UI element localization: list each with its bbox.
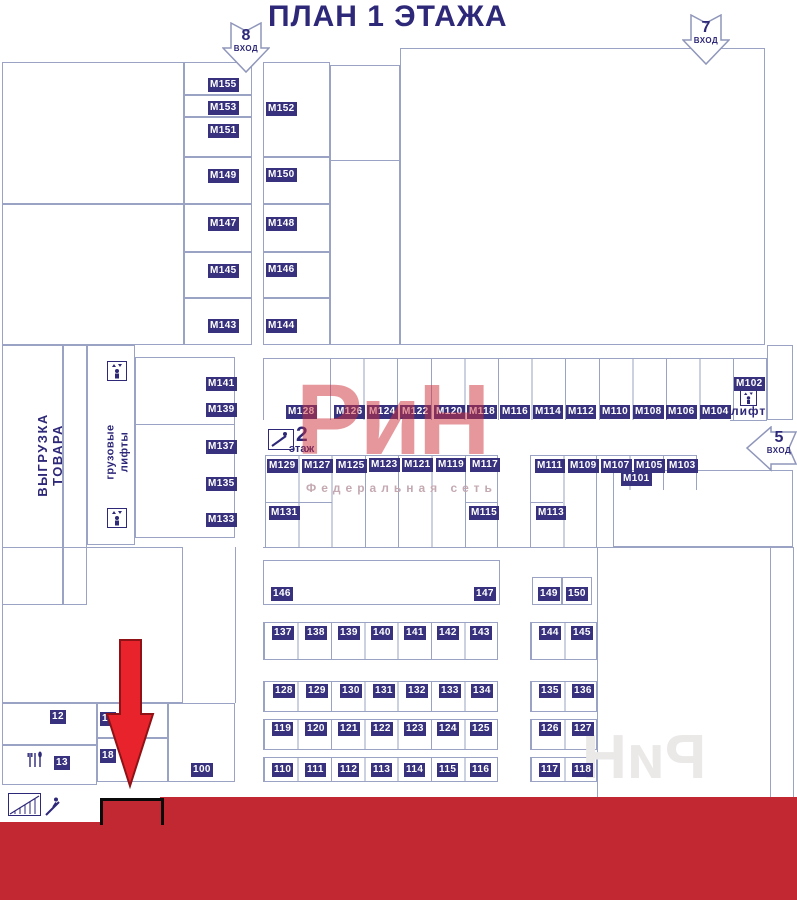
- brand-watermark: РиН: [582, 726, 706, 790]
- wall: [530, 502, 563, 503]
- wall: [135, 424, 235, 425]
- wall: [330, 160, 400, 161]
- room-outline: [330, 65, 400, 345]
- unit-badge-М114: М114: [533, 405, 563, 419]
- unit-badge-149: 149: [538, 587, 560, 601]
- highlighted-unit-box: [100, 798, 164, 825]
- unit-badge-М131: М131: [269, 506, 300, 520]
- brand-subtitle: Федеральная сеть: [306, 481, 497, 495]
- unit-badge-М146: М146: [266, 263, 297, 277]
- unit-badge-112: 112: [338, 763, 359, 777]
- unit-badge-М107: М107: [601, 459, 632, 473]
- floor-plan: ПЛАН 1 ЭТАЖА: [0, 0, 797, 900]
- unit-badge-М139: М139: [206, 403, 237, 417]
- unit-badge-118: 118: [572, 763, 593, 777]
- entrance-number: 8: [222, 28, 270, 44]
- entrance-7: 7ВХОД: [682, 14, 730, 66]
- unit-badge-М103: М103: [667, 459, 698, 473]
- unit-badge-114: 114: [404, 763, 425, 777]
- lift-label: лифт: [731, 405, 766, 418]
- wall: [263, 547, 793, 548]
- unit-badge-М116: М116: [500, 405, 530, 419]
- entrance-word: ВХОД: [682, 36, 730, 45]
- unit-badge-126: 126: [539, 722, 561, 736]
- stairs-icon: [8, 793, 41, 816]
- unit-badge-М133: М133: [206, 513, 237, 527]
- unit-badge-123: 123: [404, 722, 426, 736]
- unit-badge-128: 128: [273, 684, 295, 698]
- unit-badge-М145: М145: [208, 264, 239, 278]
- escalator-person-icon: [44, 795, 62, 817]
- unit-badge-145: 145: [571, 626, 593, 640]
- unit-badge-138: 138: [305, 626, 327, 640]
- unit-badge-М143: М143: [208, 319, 239, 333]
- unit-badge-115: 115: [437, 763, 458, 777]
- unit-badge-М112: М112: [566, 405, 596, 419]
- entrance-word: ВХОД: [762, 446, 796, 455]
- unit-badge-134: 134: [471, 684, 493, 698]
- room-outline: [2, 745, 97, 785]
- location-arrow-icon: [103, 634, 157, 790]
- unit-badge-М144: М144: [266, 319, 297, 333]
- unit-badge-111: 111: [305, 763, 326, 777]
- unit-badge-125: 125: [470, 722, 492, 736]
- unloading-area-label: ВЫГРУЗКА ТОВАРА: [36, 350, 64, 560]
- unit-badge-150: 150: [566, 587, 588, 601]
- unit-badge-М151: М151: [208, 124, 239, 138]
- wall: [770, 547, 771, 798]
- unit-badge-135: 135: [539, 684, 561, 698]
- unit-badge-116: 116: [470, 763, 491, 777]
- wall: [793, 547, 794, 798]
- room-outline: [2, 204, 184, 345]
- entrance-word: ВХОД: [222, 44, 270, 53]
- entrance-number: 5: [762, 430, 796, 446]
- unit-badge-113: 113: [371, 763, 392, 777]
- unit-badge-М110: М110: [600, 405, 630, 419]
- wall: [730, 420, 767, 421]
- room-outline: [400, 48, 765, 345]
- unit-badge-139: 139: [338, 626, 360, 640]
- unit-badge-М141: М141: [206, 377, 237, 391]
- entrance-8: 8ВХОД: [222, 22, 270, 74]
- unit-badge-141: 141: [404, 626, 426, 640]
- unit-badge-М153: М153: [208, 101, 239, 115]
- page-title: ПЛАН 1 ЭТАЖА: [268, 0, 508, 34]
- unit-badge-121: 121: [338, 722, 360, 736]
- unit-badge-147: 147: [474, 587, 496, 601]
- unit-badge-110: 110: [272, 763, 293, 777]
- unit-badge-М101: М101: [621, 472, 652, 486]
- unit-badge-М106: М106: [666, 405, 697, 419]
- unit-badge-120: 120: [305, 722, 327, 736]
- unit-badge-144: 144: [539, 626, 561, 640]
- unit-badge-119: 119: [272, 722, 293, 736]
- unit-badge-М108: М108: [633, 405, 664, 419]
- unit-badge-140: 140: [371, 626, 393, 640]
- unit-badge-М155: М155: [208, 78, 239, 92]
- unit-badge-13: 13: [54, 756, 70, 770]
- unit-badge-М109: М109: [568, 459, 599, 473]
- unit-badge-129: 129: [306, 684, 328, 698]
- unit-badge-М115: М115: [469, 506, 499, 520]
- cargo-lifts-label: грузовые лифты: [101, 393, 135, 511]
- unit-badge-М149: М149: [208, 169, 239, 183]
- wall: [263, 358, 264, 420]
- unit-badge-131: 131: [373, 684, 395, 698]
- unit-badge-М111: М111: [535, 459, 565, 473]
- unit-badge-142: 142: [437, 626, 459, 640]
- room-outline: [263, 560, 500, 605]
- cutlery-icon: [27, 751, 43, 769]
- unit-badge-М102: М102: [734, 377, 765, 391]
- elevator-icon: [107, 508, 127, 528]
- unit-badge-136: 136: [572, 684, 594, 698]
- unit-badge-124: 124: [437, 722, 459, 736]
- unit-badge-М105: М105: [634, 459, 665, 473]
- wall: [235, 547, 236, 703]
- unit-badge-12: 12: [50, 710, 66, 724]
- unit-badge-М104: М104: [700, 405, 731, 419]
- unit-badge-М148: М148: [266, 217, 297, 231]
- elevator-icon: [107, 361, 127, 381]
- unit-badge-М129: М129: [267, 459, 298, 473]
- room-outline: [767, 345, 793, 420]
- unit-badge-143: 143: [470, 626, 492, 640]
- unit-badge-127: 127: [572, 722, 594, 736]
- wall: [465, 502, 498, 503]
- red-band: [0, 822, 797, 900]
- unit-badge-М113: М113: [536, 506, 566, 520]
- unit-badge-122: 122: [371, 722, 393, 736]
- unit-badge-132: 132: [406, 684, 428, 698]
- entrance-number: 7: [682, 20, 730, 36]
- unit-badge-100: 100: [191, 763, 213, 777]
- unit-badge-М150: М150: [266, 168, 297, 182]
- unit-badge-М135: М135: [206, 477, 237, 491]
- brand-logo: РиН: [296, 370, 487, 470]
- unit-badge-133: 133: [439, 684, 461, 698]
- unit-badge-117: 117: [539, 763, 560, 777]
- unit-badge-130: 130: [340, 684, 362, 698]
- entrance-5: 5ВХОД: [746, 426, 797, 472]
- unit-badge-137: 137: [272, 626, 294, 640]
- room-outline: [2, 62, 184, 204]
- unit-badge-146: 146: [271, 587, 293, 601]
- unit-badge-М137: М137: [206, 440, 237, 454]
- unit-badge-М147: М147: [208, 217, 239, 231]
- unit-badge-М152: М152: [266, 102, 297, 116]
- wall: [265, 502, 332, 503]
